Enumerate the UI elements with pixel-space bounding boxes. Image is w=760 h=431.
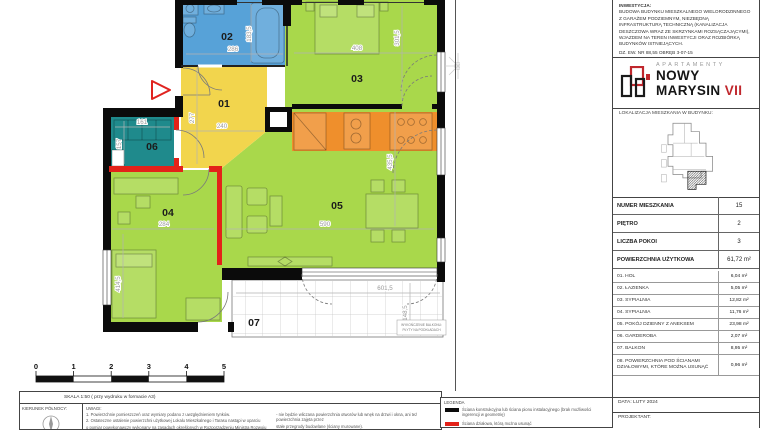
room-name: 06. GARDEROBA: [613, 334, 718, 340]
info-value: 61,72 m²: [718, 251, 759, 268]
apartment-location-highlight: [688, 171, 706, 189]
apartment-info-table: NUMER MIESZKANIA 15 PIĘTRO 2 LICZBA POKO…: [613, 197, 759, 269]
remark-item: stałe przegrody budowlane (ściany murowa…: [276, 424, 438, 429]
svg-text:WYKOŃCZENIE BALKONU:: WYKOŃCZENIE BALKONU:: [401, 323, 442, 327]
room-name: 03. SYPIALNIA: [613, 298, 718, 304]
legend-title: LEGENDA: [444, 400, 609, 405]
svg-text:414,5: 414,5: [115, 276, 122, 292]
room-area: 5,05 m²: [718, 283, 759, 294]
balcony-note: WYKOŃCZENIE BALKONU: PŁYTY NA PODKŁADACH: [397, 320, 446, 335]
room-name: 08. POWIERZCHNIA POD ŚCIANAMI DZIAŁOWYMI…: [613, 359, 718, 370]
logo-name: NOWY MARYSIN VII: [656, 68, 759, 98]
info-row: NUMER MIESZKANIA 15: [613, 197, 759, 215]
legend-item-text: Ściana konstrukcyjna lub ściana pionu in…: [462, 407, 609, 418]
remark-item: 1. Powierzchnie pomieszczeń oraz wymiary…: [86, 412, 272, 417]
remarks-title: UWAGI:: [86, 406, 438, 411]
building-location-map: [641, 120, 733, 196]
room-area-row: 01. HOL 6,04 m²: [613, 271, 759, 283]
svg-text:06: 06: [146, 141, 158, 153]
removable-wall-swatch: [445, 422, 459, 426]
remark-item: o pomiar powykonawczy wykonany na zasada…: [86, 425, 272, 430]
room-area: 2,07 m²: [718, 331, 759, 342]
investment-description: INWESTYCJA: BUDOWA BUDYNKU MIESZKALNEGO …: [613, 0, 759, 56]
svg-text:161: 161: [137, 119, 148, 126]
svg-text:02: 02: [221, 31, 233, 43]
info-value: 2: [718, 215, 759, 232]
investment-line: DZ. EW. NR 88,55 OBRĘB 3-07-15: [619, 50, 759, 56]
info-label: NUMER MIESZKANIA: [613, 203, 718, 209]
legend-item-text: Ściana działowa, którą można usunąć: [462, 421, 609, 426]
svg-text:05: 05: [331, 200, 343, 212]
room-area: 8,95 m²: [718, 343, 759, 354]
svg-text:03: 03: [351, 73, 363, 85]
svg-text:1: 1: [72, 362, 76, 371]
info-value: 15: [718, 197, 759, 214]
room-name: 07. BALKON: [613, 346, 718, 352]
room-area: 11,76 m²: [718, 307, 759, 318]
logo: APARTAMENTY NOWY MARYSIN VII: [619, 62, 759, 98]
room-area: 12,82 m²: [718, 295, 759, 306]
room-area-row: 02. ŁAZIENKA 5,05 m²: [613, 283, 759, 295]
room-area-row: 07. BALKON 8,95 m²: [613, 343, 759, 355]
svg-text:2: 2: [109, 362, 113, 371]
scale-bar: 0 1 2 3 4 5: [28, 360, 228, 388]
svg-text:590: 590: [320, 221, 331, 228]
room-area-row: 04. SYPIALNIA 11,76 m²: [613, 307, 759, 319]
room-name: 01. HOL: [613, 274, 718, 280]
info-row: POWIERZCHNIA UŻYTKOWA 61,72 m²: [613, 251, 759, 269]
remark-item: - nie będzie wliczana powierzchnia otwor…: [276, 412, 438, 423]
info-label: PIĘTRO: [613, 221, 718, 227]
designer-label: PROJEKTANT:: [613, 412, 759, 431]
legend-item: Ściana konstrukcyjna lub ściana pionu in…: [444, 407, 609, 419]
info-row: LICZBA POKOI 3: [613, 233, 759, 251]
svg-text:157: 157: [116, 138, 123, 149]
room-name: 02. ŁAZIENKA: [613, 286, 718, 292]
svg-text:286: 286: [228, 46, 239, 53]
svg-text:277: 277: [189, 112, 196, 123]
room-areas-table: 01. HOL 6,04 m² 02. ŁAZIENKA 5,05 m² 03.…: [613, 271, 759, 376]
logo-building-icon: [619, 66, 653, 98]
remark-item: 2. Ostateczne ustalenie powierzchni użyt…: [86, 418, 272, 423]
remarks-cell: UWAGI: 1. Powierzchnie pomieszczeń oraz …: [83, 404, 441, 430]
svg-text:301,5: 301,5: [394, 30, 401, 46]
info-label: POWIERZCHNIA UŻYTKOWA: [613, 257, 718, 263]
north-label: KIERUNEK PÓŁNOCY:: [22, 406, 80, 411]
svg-text:01: 01: [218, 98, 230, 110]
sheet-divider: [455, 0, 456, 391]
svg-text:5: 5: [222, 362, 226, 371]
floor-plan-sheet: { "plan": { "labels": { "r01":"01","r02"…: [0, 0, 760, 428]
shaft-core: [270, 112, 287, 127]
room-area-row: 03. SYPIALNIA 12,82 m²: [613, 295, 759, 307]
info-value: 3: [718, 233, 759, 250]
north-cell: KIERUNEK PÓŁNOCY:: [20, 404, 83, 430]
svg-text:183,5: 183,5: [246, 26, 253, 42]
structural-wall-swatch: [445, 408, 459, 412]
door-gap-room04: [198, 322, 228, 332]
svg-text:04: 04: [162, 207, 174, 219]
room-area: 6,04 m²: [718, 271, 759, 282]
room-area: 0,96 m²: [718, 355, 759, 375]
room-name: 04. SYPIALNIA: [613, 310, 718, 316]
svg-text:07: 07: [248, 317, 260, 329]
logo-roman: VII: [725, 83, 743, 98]
info-label: LICZBA POKOI: [613, 239, 718, 245]
svg-text:240: 240: [217, 123, 228, 130]
title-block: INWESTYCJA: BUDOWA BUDYNKU MIESZKALNEGO …: [612, 0, 760, 428]
svg-text:435,5: 435,5: [387, 154, 394, 170]
svg-text:0: 0: [34, 362, 38, 371]
room-area: 23,98 m²: [718, 319, 759, 330]
legend-block: LEGENDA Ściana konstrukcyjna lub ściana …: [440, 397, 612, 428]
footer-notes-block: SKALA 1:50 ( przy wydruku w formacie A3)…: [19, 391, 442, 430]
scale-note: SKALA 1:50 ( przy wydruku w formacie A3): [20, 392, 441, 404]
svg-text:PŁYTY NA PODKŁADACH: PŁYTY NA PODKŁADACH: [402, 328, 441, 332]
info-row: PIĘTRO 2: [613, 215, 759, 233]
svg-text:601,5: 601,5: [377, 285, 393, 292]
svg-text:284: 284: [159, 221, 170, 228]
room-area-row: 08. POWIERZCHNIA POD ŚCIANAMI DZIAŁOWYMI…: [613, 355, 759, 376]
svg-text:148,5: 148,5: [402, 305, 409, 321]
logo-name-text: NOWY MARYSIN: [656, 68, 721, 98]
room-area-row: 05. POKÓJ DZIENNY Z ANEKSEM 23,98 m²: [613, 319, 759, 331]
floor-plan-drawing: 286 183,5 408 301,5 240 277 161 157 284 …: [0, 0, 460, 390]
room-name: 05. POKÓJ DZIENNY Z ANEKSEM: [613, 322, 718, 328]
entrance-arrow-icon: [152, 81, 170, 99]
svg-text:408: 408: [352, 45, 363, 52]
svg-text:3: 3: [147, 362, 151, 371]
compass-rose-icon: [445, 53, 460, 79]
svg-text:4: 4: [184, 362, 189, 371]
investment-line: BUDYNKÓW ISTNIEJĄCYCH.: [619, 41, 759, 47]
legend-item: Ściana działowa, którą można usunąć: [444, 421, 609, 427]
location-label: LOKALIZACJA MIESZKANIA W BUDYNKU:: [613, 108, 713, 116]
investment-line: BUDOWA BUDYNKU MIESZKALNEGO WIELORODZINN…: [619, 9, 759, 15]
room-area-row: 06. GARDEROBA 2,07 m²: [613, 331, 759, 343]
